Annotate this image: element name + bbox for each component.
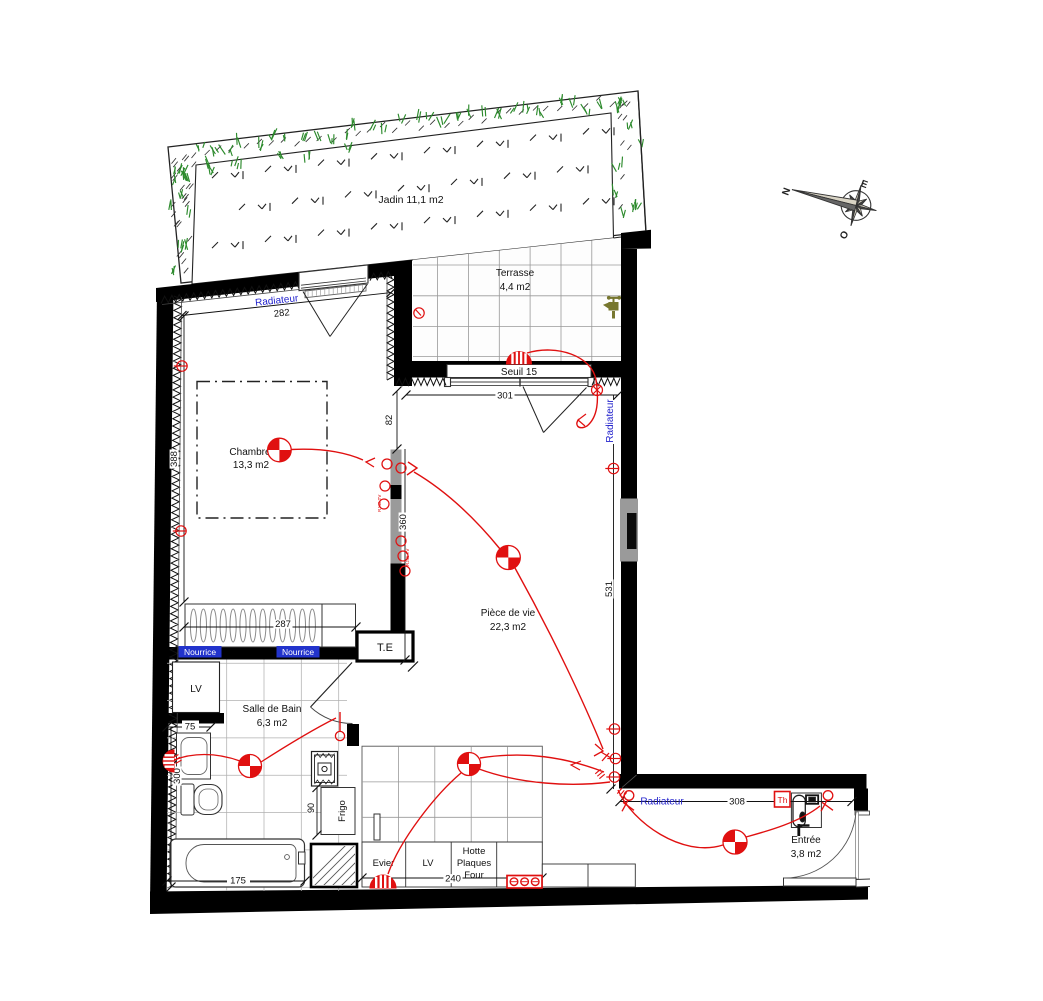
svg-text:Th: Th	[778, 795, 788, 805]
svg-text:22,3 m2: 22,3 m2	[490, 622, 527, 633]
svg-text:75: 75	[185, 722, 196, 733]
svg-text:Nourrice: Nourrice	[184, 647, 216, 657]
svg-text:Jadin 11,1 m2: Jadin 11,1 m2	[378, 194, 443, 206]
svg-text:Pièce de vie: Pièce de vie	[481, 608, 536, 619]
svg-text:13,3 m2: 13,3 m2	[233, 460, 270, 471]
svg-text:Four: Four	[464, 870, 484, 881]
svg-text:Plaques: Plaques	[457, 858, 492, 869]
svg-text:388: 388	[169, 451, 180, 467]
svg-text:3,8 m2: 3,8 m2	[791, 849, 822, 860]
svg-text:T.E: T.E	[377, 642, 393, 654]
svg-text:308: 308	[729, 797, 745, 808]
svg-text:287: 287	[275, 619, 291, 630]
svg-text:282: 282	[273, 307, 290, 320]
svg-text:Chambre: Chambre	[229, 447, 271, 458]
svg-text:6,3 m2: 6,3 m2	[257, 718, 288, 729]
svg-text:Hotte: Hotte	[463, 846, 486, 857]
svg-text:531: 531	[604, 581, 615, 597]
svg-text:Seuil 15: Seuil 15	[501, 367, 538, 378]
svg-text:Frigo: Frigo	[337, 800, 348, 822]
svg-text:82: 82	[384, 415, 395, 426]
svg-text:360: 360	[398, 514, 409, 530]
svg-text:90: 90	[306, 803, 316, 813]
svg-text:RJ45 TV: RJ45 TV	[405, 549, 410, 566]
svg-text:Nourrice: Nourrice	[282, 647, 314, 657]
svg-text:4,4 m2: 4,4 m2	[500, 282, 531, 293]
svg-text:RJ45 TV: RJ45 TV	[377, 495, 382, 512]
svg-text:LV: LV	[423, 858, 435, 869]
svg-text:301: 301	[497, 391, 513, 402]
svg-text:Terrasse: Terrasse	[496, 268, 535, 279]
svg-text:240: 240	[445, 874, 461, 885]
svg-text:Radiateur: Radiateur	[640, 797, 684, 808]
svg-text:LV: LV	[190, 684, 202, 695]
svg-text:Radiateur: Radiateur	[605, 399, 616, 443]
svg-text:175: 175	[230, 876, 246, 887]
svg-text:Entrée: Entrée	[791, 835, 821, 846]
svg-text:Salle de Bain: Salle de Bain	[243, 704, 302, 715]
